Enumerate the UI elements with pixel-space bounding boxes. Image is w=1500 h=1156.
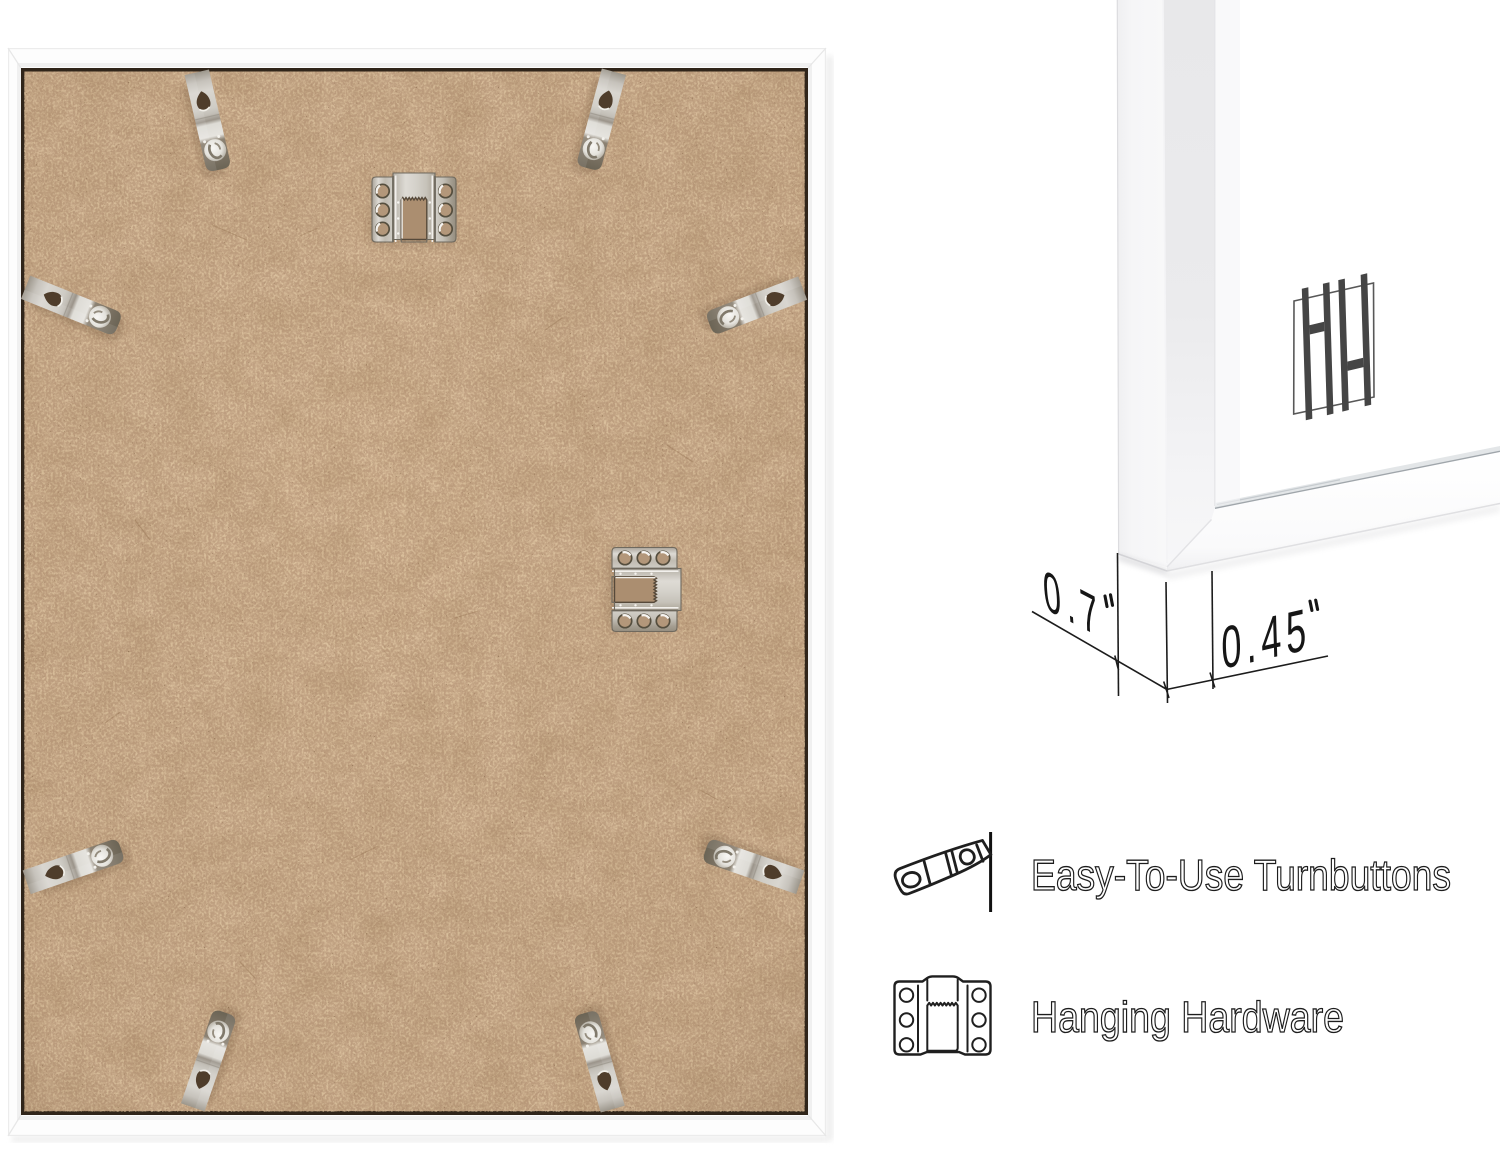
svg-text:Easy-To-Use Turnbuttons: Easy-To-Use Turnbuttons xyxy=(1031,852,1451,900)
svg-text:Hanging Hardware: Hanging Hardware xyxy=(1031,994,1344,1042)
